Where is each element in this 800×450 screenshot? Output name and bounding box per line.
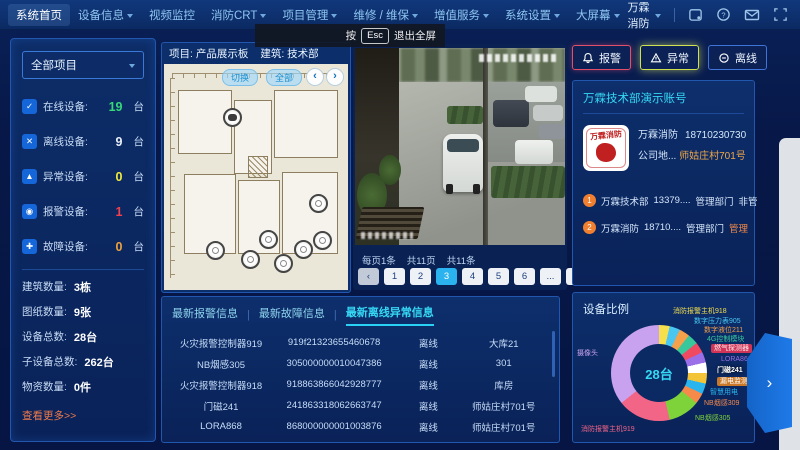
chevron-down-icon — [655, 14, 661, 18]
slice-label: 智慧用电 — [710, 388, 738, 397]
cell-device-name: LORA868 — [172, 421, 270, 432]
nav-item-big-screen[interactable]: 大屏幕 — [568, 4, 628, 26]
cell-device-id: 305000000010047386 — [270, 358, 398, 369]
summary-drawings: 图纸数量:9张 — [22, 299, 144, 324]
summary-supplies: 物资数量:0件 — [22, 374, 144, 399]
slice-label: NB烟感309 — [704, 399, 739, 408]
stats-sidebar: 全部项目 ✓在线设备:19台 ✕离线设备:9台 ▲异常设备:0台 ◉报警设备:1… — [10, 38, 156, 442]
parked-car — [493, 100, 529, 127]
nav-item-maintenance[interactable]: 维修 / 维保 — [345, 4, 426, 26]
dashboard-screen: 系统首页 设备信息 视频监控 消防CRT 项目管理 维修 / 维保 增值服务 系… — [0, 0, 800, 450]
company-logo: 万霖消防 — [583, 125, 629, 171]
member-name: 万霖消防 — [601, 221, 639, 235]
nav-label: 设备信息 — [78, 7, 124, 23]
nav-item-project-mgmt[interactable]: 项目管理 — [274, 4, 345, 26]
stat-value: 1 — [116, 205, 123, 219]
cell-device-name: NB烟感305 — [172, 357, 270, 371]
plan-switch-button[interactable]: 切换 — [222, 69, 258, 86]
pager-ellipsis[interactable]: ... — [540, 268, 561, 285]
stat-label: 故障设备: — [43, 239, 110, 254]
cell-device-id: 868000000001003876 — [270, 421, 398, 432]
slice-label: NB烟感305 — [695, 414, 730, 423]
member-number-badge: 2 — [583, 221, 596, 234]
slice-label: 燃气探测器 — [711, 344, 752, 353]
project-select-value: 全部项目 — [31, 57, 77, 73]
member-phone: 18710.... — [644, 222, 681, 233]
plan-all-button[interactable]: 全部 — [266, 69, 302, 86]
notification-icon[interactable] — [688, 7, 703, 23]
cell-device-id: 241863318062663747 — [270, 400, 398, 411]
pagination-info: 每页1条 共11页 共11条 — [362, 253, 476, 267]
pager-page-3-active[interactable]: 3 — [436, 268, 457, 285]
slice-label: 消防报警主机919 — [581, 425, 635, 434]
summary-subdevices: 子设备总数:262台 — [22, 349, 144, 374]
pager-page-6[interactable]: 6 — [514, 268, 535, 285]
offline-filter-button[interactable]: 离线 — [708, 45, 767, 70]
member-phone: 13379.... — [654, 195, 691, 206]
member-name: 万霖技术部 — [601, 194, 649, 208]
video-timestamp-overlay — [479, 54, 559, 62]
chevron-down-icon — [129, 64, 135, 68]
parked-car — [539, 124, 565, 139]
donut-center-label: 28台 — [611, 325, 707, 421]
parked-car — [533, 105, 563, 121]
esc-keycap: Esc — [361, 28, 389, 44]
slice-label: 摄像头 — [577, 349, 598, 358]
tab-latest-offline[interactable]: 最新离线异常信息 — [346, 304, 434, 326]
latest-info-panel: 最新报警信息 | 最新故障信息 | 最新离线异常信息 火灾报警控制器919919… — [161, 296, 560, 443]
table-row[interactable]: NB烟感305305000000010047386离线301 — [172, 353, 549, 374]
nav-label: 维修 / 维保 — [353, 7, 409, 23]
cell-device-name: 门磁241 — [172, 399, 270, 413]
slice-label: 消防报警主机918 — [673, 307, 727, 316]
abnormal-button-label: 异常 — [667, 50, 689, 66]
nav-item-device-info[interactable]: 设备信息 — [70, 4, 141, 26]
parked-car — [525, 86, 557, 102]
tab-latest-alarms[interactable]: 最新报警信息 — [172, 305, 238, 325]
device-marker[interactable] — [274, 254, 293, 273]
device-marker[interactable] — [206, 241, 225, 260]
cell-location: 师姑庄村701号 — [459, 420, 549, 434]
chevron-down-icon — [127, 14, 133, 18]
member-role: 管理 — [729, 221, 748, 235]
cell-status: 离线 — [398, 420, 458, 434]
table-row[interactable]: 火灾报警控制器919919f21323655460678离线大库21 — [172, 332, 549, 353]
cell-device-id: 919f21323655460678 — [270, 337, 398, 348]
summary-label: 设备总数: — [22, 329, 67, 344]
user-menu[interactable]: 万霖消防 — [628, 0, 662, 31]
divider — [22, 269, 144, 270]
tab-latest-faults[interactable]: 最新故障信息 — [259, 305, 325, 325]
video-hedge — [491, 166, 565, 198]
device-marker[interactable] — [259, 230, 278, 249]
exit-fullscreen-tooltip: 按 Esc 退出全屏 — [255, 24, 445, 47]
alarm-filter-button[interactable]: 报警 — [572, 45, 631, 70]
stat-offline: ✕离线设备:9台 — [22, 124, 144, 159]
alarm-bell-icon — [582, 52, 594, 64]
slice-label: 4G控制模块 — [707, 335, 744, 344]
slice-label: 数字压力表905 — [694, 317, 741, 326]
device-marker-camera[interactable] — [223, 108, 242, 127]
slice-label: 漏电监测 — [717, 377, 751, 386]
tab-separator: | — [334, 309, 337, 321]
stat-value: 19 — [109, 100, 123, 114]
total-items-text: 共11条 — [447, 253, 476, 267]
nav-label: 视频监控 — [149, 7, 195, 23]
summary-devices: 设备总数:28台 — [22, 324, 144, 349]
plan-building-label: 建筑: 技术部 — [260, 46, 318, 61]
nav-label: 项目管理 — [282, 7, 328, 23]
info-tabs: 最新报警信息 | 最新故障信息 | 最新离线异常信息 — [172, 304, 549, 325]
divider — [674, 8, 675, 22]
cctv-video-feed[interactable] — [355, 48, 565, 245]
summary-label: 建筑数量: — [22, 279, 67, 294]
chevron-down-icon — [331, 14, 337, 18]
view-more-link[interactable]: 查看更多>> — [22, 408, 76, 423]
company-phone: 18710230730 — [685, 130, 746, 141]
stat-unit: 台 — [134, 169, 145, 184]
stat-label: 在线设备: — [43, 99, 103, 114]
company-name: 万霖消防 — [638, 130, 678, 141]
abnormal-filter-button[interactable]: 异常 — [640, 45, 699, 70]
floorplan-canvas[interactable]: 切换 全部 ‹ › — [164, 64, 348, 290]
nav-label: 系统首页 — [16, 7, 62, 23]
summary-value: 28台 — [74, 329, 97, 345]
cell-device-id: 918863866042928777 — [270, 379, 398, 390]
member-dept: 管理部门 — [696, 194, 734, 208]
stat-alarm: ◉报警设备:1台 — [22, 194, 144, 229]
floorplan-panel: 项目: 产品展示板 建筑: 技术部 切换 全部 ‹ › — [161, 42, 351, 293]
cell-location: 301 — [459, 358, 549, 369]
stat-abnormal: ▲异常设备:0台 — [22, 159, 144, 194]
offline-device-table: 火灾报警控制器919919f21323655460678离线大库21 NB烟感3… — [172, 332, 549, 437]
pager-page-1[interactable]: 1 — [384, 268, 405, 285]
nav-item-home[interactable]: 系统首页 — [8, 4, 70, 26]
stat-value: 0 — [116, 240, 123, 254]
device-marker[interactable] — [309, 194, 328, 213]
summary-value: 0件 — [74, 379, 91, 395]
summary-label: 子设备总数: — [22, 354, 77, 369]
summary-label: 图纸数量: — [22, 304, 67, 319]
chevron-down-icon — [614, 14, 620, 18]
device-marker[interactable] — [294, 240, 313, 259]
nav-right-cluster: 万霖消防 ? — [628, 0, 792, 31]
abnormal-device-icon: ▲ — [22, 169, 37, 184]
alarm-device-icon: ◉ — [22, 204, 37, 219]
warning-triangle-icon — [650, 52, 662, 64]
offline-device-icon: ✕ — [22, 134, 37, 149]
help-icon[interactable]: ? — [716, 7, 731, 23]
account-title: 万霖技术部演示账号 — [583, 90, 744, 114]
plan-stairwell — [248, 156, 268, 178]
member-row[interactable]: 1 万霖技术部 13379.... 管理部门 非管 — [583, 187, 744, 214]
device-marker[interactable] — [241, 250, 260, 269]
pager-page-4[interactable]: 4 — [462, 268, 483, 285]
cell-status: 离线 — [398, 378, 458, 392]
summary-value: 3栋 — [74, 279, 91, 295]
account-info: 万霖消防18710230730 公司地... 师姑庄村701号 — [638, 125, 746, 171]
plan-room — [274, 90, 338, 158]
video-plant — [379, 155, 401, 185]
video-panel: 每页1条 共11页 共11条 ‹ 1 2 3 4 5 6 ... 11 › — [353, 44, 567, 290]
chevron-down-icon — [483, 14, 489, 18]
tab-separator: | — [247, 309, 250, 321]
device-ratio-panel: 设备比例 28台 消防报警主机918 数字压力表905 数字液位211 4G控制… — [572, 292, 755, 443]
account-body: 万霖消防 万霖消防18710230730 公司地... 师姑庄村701号 — [583, 125, 744, 171]
stat-online: ✓在线设备:19台 — [22, 89, 144, 124]
chevron-down-icon — [554, 14, 560, 18]
stat-label: 报警设备: — [43, 204, 110, 219]
summary-value: 262台 — [84, 354, 113, 370]
table-row[interactable]: LORA868868000000001003876离线师姑庄村701号 — [172, 416, 549, 437]
parked-car — [515, 140, 553, 164]
logo-seal — [596, 143, 616, 162]
video-watermark — [361, 232, 413, 239]
video-hedge — [447, 106, 483, 124]
device-marker[interactable] — [313, 231, 332, 250]
nav-item-settings[interactable]: 系统设置 — [497, 4, 568, 26]
plan-project-label: 项目: 产品展示板 — [169, 46, 248, 61]
stat-value: 9 — [116, 135, 123, 149]
chevron-down-icon — [260, 14, 266, 18]
tooltip-action-text: 退出全屏 — [394, 28, 436, 43]
stat-unit: 台 — [134, 134, 145, 149]
tooltip-press-text: 按 — [346, 28, 357, 43]
member-row[interactable]: 2 万霖消防 18710.... 管理部门 管理 — [583, 214, 744, 241]
alarm-button-label: 报警 — [599, 50, 621, 66]
online-device-icon: ✓ — [22, 99, 37, 114]
fullscreen-icon[interactable] — [773, 7, 788, 23]
per-page-text: 每页1条 — [362, 253, 396, 267]
cell-location: 库房 — [459, 378, 549, 392]
cell-device-name: 火灾报警控制器919 — [172, 336, 270, 350]
cell-device-name: 火灾报警控制器918 — [172, 378, 270, 392]
project-select[interactable]: 全部项目 — [22, 51, 144, 79]
plan-ruler-left — [170, 78, 175, 278]
chevron-down-icon — [412, 14, 418, 18]
stat-value: 0 — [116, 170, 123, 184]
address-label: 公司地... — [638, 151, 676, 162]
member-dept: 管理部门 — [686, 221, 724, 235]
table-row[interactable]: 门磁241241863318062663747离线师姑庄村701号 — [172, 395, 549, 416]
mail-icon[interactable] — [744, 7, 760, 23]
nav-item-value-services[interactable]: 增值服务 — [426, 4, 497, 26]
nav-label: 系统设置 — [505, 7, 551, 23]
slice-label: 门磁241 — [717, 366, 743, 375]
plan-next-button[interactable]: › — [326, 68, 344, 86]
stat-unit: 台 — [134, 204, 145, 219]
nav-label: 大屏幕 — [576, 7, 611, 23]
total-pages-text: 共11页 — [407, 253, 436, 267]
stat-fault: ✚故障设备:0台 — [22, 229, 144, 264]
cell-location: 师姑庄村701号 — [459, 399, 549, 413]
table-scrollbar[interactable] — [552, 331, 555, 377]
pager-page-5[interactable]: 5 — [488, 268, 509, 285]
cell-status: 离线 — [398, 399, 458, 413]
member-list: 1 万霖技术部 13379.... 管理部门 非管 2 万霖消防 18710..… — [583, 187, 744, 241]
chevron-right-icon: › — [767, 373, 773, 393]
stat-unit: 台 — [134, 99, 145, 114]
member-role: 非管 — [739, 194, 758, 208]
member-number-badge: 1 — [583, 194, 596, 207]
nav-label: 增值服务 — [434, 7, 480, 23]
summary-label: 物资数量: — [22, 379, 67, 394]
pager-prev-button[interactable]: ‹ — [358, 268, 379, 285]
nav-item-video-monitor[interactable]: 视频监控 — [141, 4, 203, 26]
account-panel: 万霖技术部演示账号 万霖消防 万霖消防18710230730 公司地... 师姑… — [572, 80, 755, 286]
company-address: 师姑庄村701号 — [679, 151, 746, 162]
username: 万霖消防 — [628, 0, 652, 31]
cell-status: 离线 — [398, 357, 458, 371]
nav-item-fire-crt[interactable]: 消防CRT — [203, 4, 274, 26]
summary-buildings: 建筑数量:3栋 — [22, 274, 144, 299]
status-filter-buttons: 报警 异常 离线 — [572, 45, 767, 70]
cell-location: 大库21 — [459, 336, 549, 350]
white-suv — [443, 134, 483, 192]
svg-text:?: ? — [721, 10, 725, 19]
table-row[interactable]: 火灾报警控制器918918863866042928777离线库房 — [172, 374, 549, 395]
nav-label: 消防CRT — [211, 7, 257, 23]
plan-prev-button[interactable]: ‹ — [306, 68, 324, 86]
slice-label: 数字液位211 — [704, 326, 743, 335]
circle-minus-icon — [718, 52, 730, 64]
stat-label: 离线设备: — [43, 134, 110, 149]
cell-status: 离线 — [398, 336, 458, 350]
summary-value: 9张 — [74, 304, 91, 320]
stat-unit: 台 — [134, 239, 145, 254]
stat-label: 异常设备: — [43, 169, 110, 184]
pager-page-2[interactable]: 2 — [410, 268, 431, 285]
video-pole — [483, 48, 488, 245]
offline-button-label: 离线 — [735, 50, 757, 66]
fault-device-icon: ✚ — [22, 239, 37, 254]
